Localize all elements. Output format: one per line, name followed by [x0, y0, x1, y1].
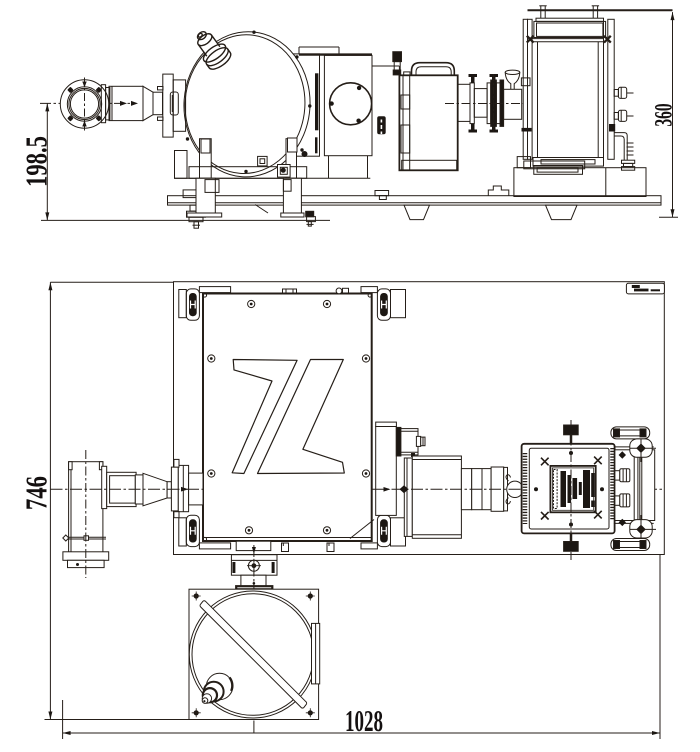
svg-text:198.5: 198.5 — [19, 136, 54, 187]
svg-text:1028: 1028 — [345, 703, 383, 738]
svg-text:360: 360 — [651, 104, 678, 127]
svg-text:746: 746 — [19, 476, 54, 510]
